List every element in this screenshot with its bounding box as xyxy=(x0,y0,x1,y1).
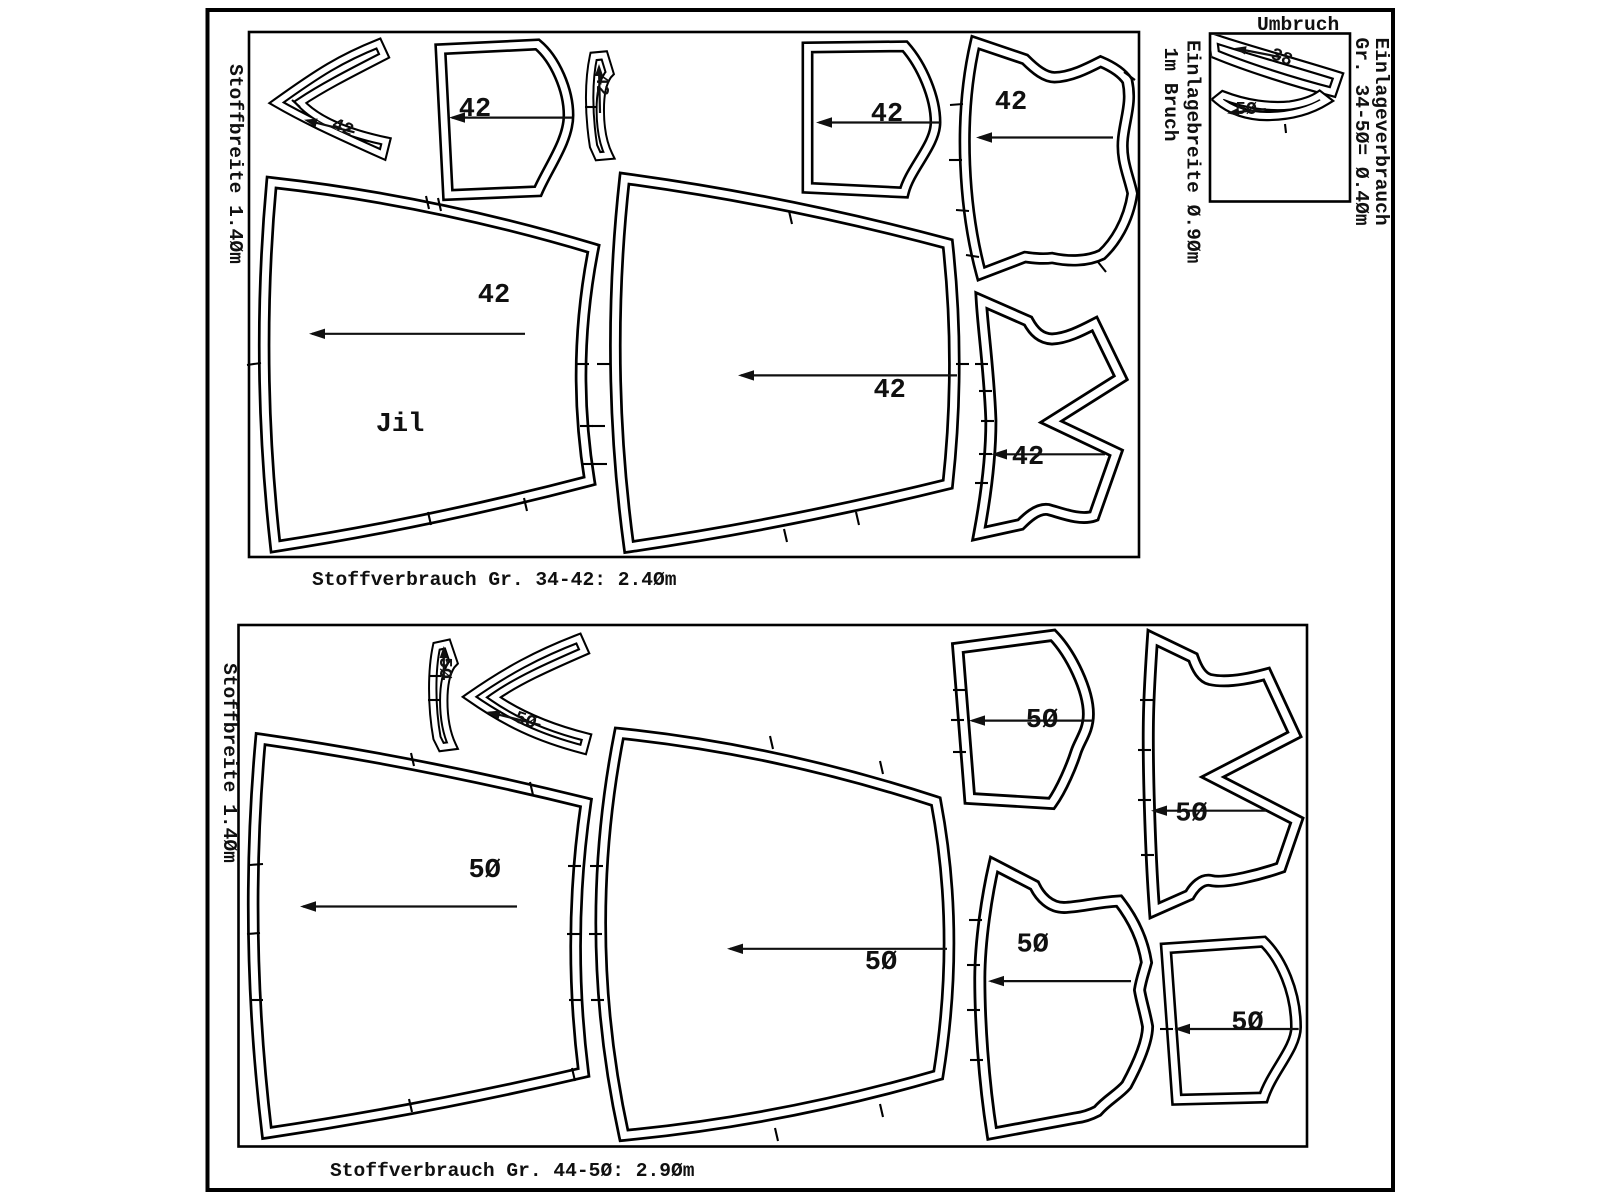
svg-text:42: 42 xyxy=(459,95,491,125)
svg-text:1m Bruch: 1m Bruch xyxy=(1159,48,1181,142)
svg-text:42: 42 xyxy=(478,281,510,311)
svg-text:5Ø: 5Ø xyxy=(1175,800,1207,830)
svg-text:Stoffverbrauch Gr. 34-42: 2.4Ø: Stoffverbrauch Gr. 34-42: 2.4Øm xyxy=(312,569,677,591)
svg-text:5Ø: 5Ø xyxy=(1026,706,1058,736)
svg-text:42: 42 xyxy=(995,88,1027,118)
svg-text:5Ø: 5Ø xyxy=(1231,1009,1263,1039)
svg-text:Stoffbreite 1.4Øm: Stoffbreite 1.4Øm xyxy=(224,64,246,264)
svg-text:Stoffbreite 1.4Øm: Stoffbreite 1.4Øm xyxy=(218,663,240,863)
svg-text:Einlagebreite Ø.9Øm: Einlagebreite Ø.9Øm xyxy=(1182,40,1204,264)
svg-text:42: 42 xyxy=(1012,443,1044,473)
svg-text:42: 42 xyxy=(873,376,905,406)
svg-text:42: 42 xyxy=(591,74,611,96)
svg-text:5Ø: 5Ø xyxy=(468,856,500,886)
svg-text:5Ø: 5Ø xyxy=(865,948,897,978)
svg-text:Stoffverbrauch Gr. 44-5Ø: 2.9Ø: Stoffverbrauch Gr. 44-5Ø: 2.9Øm xyxy=(330,1160,695,1182)
svg-text:Einlageverbrauch: Einlageverbrauch xyxy=(1370,38,1392,226)
svg-text:5Ø: 5Ø xyxy=(434,657,454,679)
svg-text:5Ø: 5Ø xyxy=(1235,100,1257,120)
svg-text:42: 42 xyxy=(871,100,903,130)
svg-text:Jil: Jil xyxy=(376,410,425,440)
svg-text:5Ø: 5Ø xyxy=(1016,930,1048,960)
svg-text:Umbruch: Umbruch xyxy=(1257,14,1339,36)
svg-text:Gr. 34-5Ø= Ø.4Øm: Gr. 34-5Ø= Ø.4Øm xyxy=(1350,38,1372,226)
